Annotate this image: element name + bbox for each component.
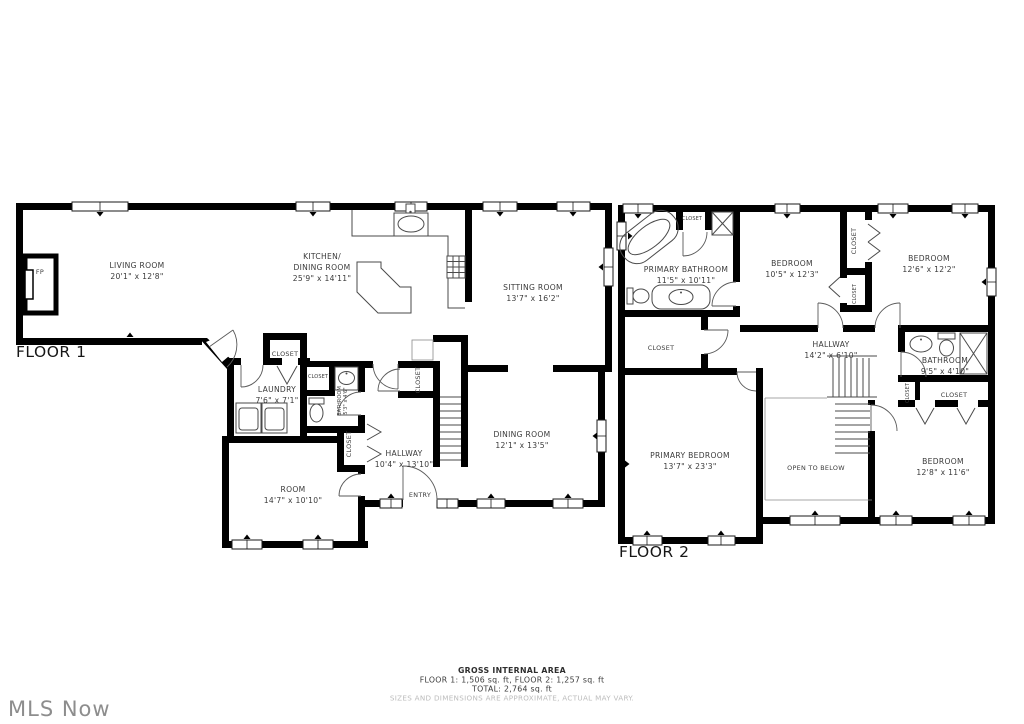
toilet-icon xyxy=(938,333,955,356)
closet-label: CLOSET xyxy=(308,374,329,380)
dining-room-dims: 12'1" x 13'5" xyxy=(495,441,548,450)
bedroom-left-dims: 10'5" x 12'3" xyxy=(765,270,818,279)
closet-label: CLOSET xyxy=(905,382,911,403)
toilet-icon xyxy=(309,398,324,422)
hallway-label: HALLWAY xyxy=(385,449,422,458)
bedroom-bottom-label: BEDROOM xyxy=(922,457,964,466)
door-arc xyxy=(875,303,900,328)
primary-bathroom-dims: 11'5" x 10'11" xyxy=(657,276,716,285)
bathroom2-dims: 9'5" x 4'10" xyxy=(921,367,969,376)
bedroom-bottom-dims: 12'8" x 11'6" xyxy=(916,468,969,477)
stairs-floor2 xyxy=(765,356,877,500)
window xyxy=(303,540,333,549)
kitchen-counter xyxy=(352,204,465,313)
sitting-room-dims: 13'7" x 16'2" xyxy=(506,294,559,303)
fireplace xyxy=(25,256,56,313)
closet-label: CLOSET xyxy=(414,367,422,394)
closet-label: CLOSET xyxy=(850,228,858,255)
bedroom-right-label: BEDROOM xyxy=(908,254,950,263)
floor2-title: FLOOR 2 xyxy=(619,543,689,561)
window xyxy=(790,516,840,525)
bathroom-dims: 5'3" x 4'6" xyxy=(343,387,349,414)
window xyxy=(878,204,908,213)
hallway-dims: 10'4" x 13'10" xyxy=(375,460,434,469)
window xyxy=(775,204,800,213)
closet-label: CLOSET xyxy=(272,350,299,358)
kitchen-label-2: DINING ROOM xyxy=(293,263,350,272)
primary-bathroom-fixtures xyxy=(613,204,733,309)
window xyxy=(437,499,458,508)
closet-label: CLOSET xyxy=(345,431,353,458)
window xyxy=(880,516,912,525)
hallway2-dims: 14'2" x 6'10" xyxy=(804,351,857,360)
open-to-below-outline xyxy=(765,398,872,500)
footer-disclaimer: SIZES AND DIMENSIONS ARE APPROXIMATE, AC… xyxy=(390,694,634,703)
toilet-icon xyxy=(627,288,649,304)
laundry-label: LAUNDRY xyxy=(258,385,296,394)
kitchen-label-1: KITCHEN/ xyxy=(303,252,341,261)
closet-label: CLOSET xyxy=(682,216,703,222)
floor2: CLOSET PRIMARY BATHROOM 11'5" x 10'11" B… xyxy=(613,204,996,561)
stairs-floor1 xyxy=(440,397,461,460)
primary-bedroom-dims: 13'7" x 23'3" xyxy=(663,462,716,471)
window xyxy=(597,420,606,452)
window xyxy=(708,536,735,545)
window xyxy=(72,202,128,211)
footer: GROSS INTERNAL AREA FLOOR 1: 1,506 sq. f… xyxy=(390,666,634,703)
closet-label: CLOSET xyxy=(648,344,675,352)
kitchen-island xyxy=(357,262,411,313)
window xyxy=(553,499,583,508)
window xyxy=(953,516,985,525)
room-label: ROOM xyxy=(281,485,306,494)
kitchen-dims: 25'9" x 14'11" xyxy=(293,274,352,283)
door-arc xyxy=(373,364,398,389)
primary-bedroom-label: PRIMARY BEDROOM xyxy=(650,451,730,460)
door-arc xyxy=(818,303,843,328)
living-room-dims: 20'1" x 12'8" xyxy=(110,272,163,281)
window xyxy=(557,202,590,211)
room-dims: 14'7" x 10'10" xyxy=(264,496,323,505)
floor-plan-canvas: LIVING ROOM 20'1" x 12'8" KITCHEN/ DININ… xyxy=(0,0,1024,724)
window xyxy=(987,268,996,296)
bathroom2-label: BATHROOM xyxy=(922,356,968,365)
window xyxy=(477,499,505,508)
window xyxy=(604,248,613,286)
sink-icon xyxy=(910,336,932,352)
closet-label: CLOSET xyxy=(852,283,858,304)
footer-total: TOTAL: 2,764 sq. ft xyxy=(471,685,552,694)
door-arc xyxy=(737,372,756,391)
closet-label: CLOSET xyxy=(941,391,968,399)
door-arc xyxy=(683,232,707,256)
footer-areas: FLOOR 1: 1,506 sq. ft, FLOOR 2: 1,257 sq… xyxy=(420,676,605,685)
entry-label: ENTRY xyxy=(409,491,431,499)
shower-icon xyxy=(712,212,733,235)
stove xyxy=(447,256,465,278)
window xyxy=(952,204,978,213)
window xyxy=(483,202,517,211)
laundry-dims: 7'6" x 7'1" xyxy=(255,396,298,405)
door-arc xyxy=(712,282,736,306)
bedroom-right-dims: 12'6" x 12'2" xyxy=(902,265,955,274)
sink-icon xyxy=(652,285,710,309)
window xyxy=(623,204,653,213)
hallway2-label: HALLWAY xyxy=(812,340,849,349)
footer-title: GROSS INTERNAL AREA xyxy=(458,666,566,675)
window xyxy=(232,540,262,549)
floor1-title: FLOOR 1 xyxy=(16,343,86,361)
floor1-windows xyxy=(72,202,613,549)
window xyxy=(296,202,330,211)
door-arc xyxy=(871,405,897,431)
living-room-label: LIVING ROOM xyxy=(110,261,165,270)
primary-bathroom-label: PRIMARY BATHROOM xyxy=(644,265,728,274)
floor1: LIVING ROOM 20'1" x 12'8" KITCHEN/ DININ… xyxy=(16,202,613,549)
window xyxy=(617,222,626,250)
bedroom-left-label: BEDROOM xyxy=(771,259,813,268)
fireplace-label: FP xyxy=(36,268,44,276)
door-arc xyxy=(241,365,263,387)
floor1-labels: LIVING ROOM 20'1" x 12'8" KITCHEN/ DININ… xyxy=(16,252,563,505)
door-arc xyxy=(704,330,728,354)
open-to-below-label: OPEN TO BELOW xyxy=(787,464,845,472)
washer-dryer xyxy=(236,403,287,433)
dining-room-label: DINING ROOM xyxy=(493,430,550,439)
mls-now-watermark: MLS Now xyxy=(8,697,111,721)
window xyxy=(380,499,402,508)
floor1-window-ticks xyxy=(97,212,604,539)
floor-plan-page: LIVING ROOM 20'1" x 12'8" KITCHEN/ DININ… xyxy=(0,0,1024,724)
sitting-room-label: SITTING ROOM xyxy=(503,283,563,292)
